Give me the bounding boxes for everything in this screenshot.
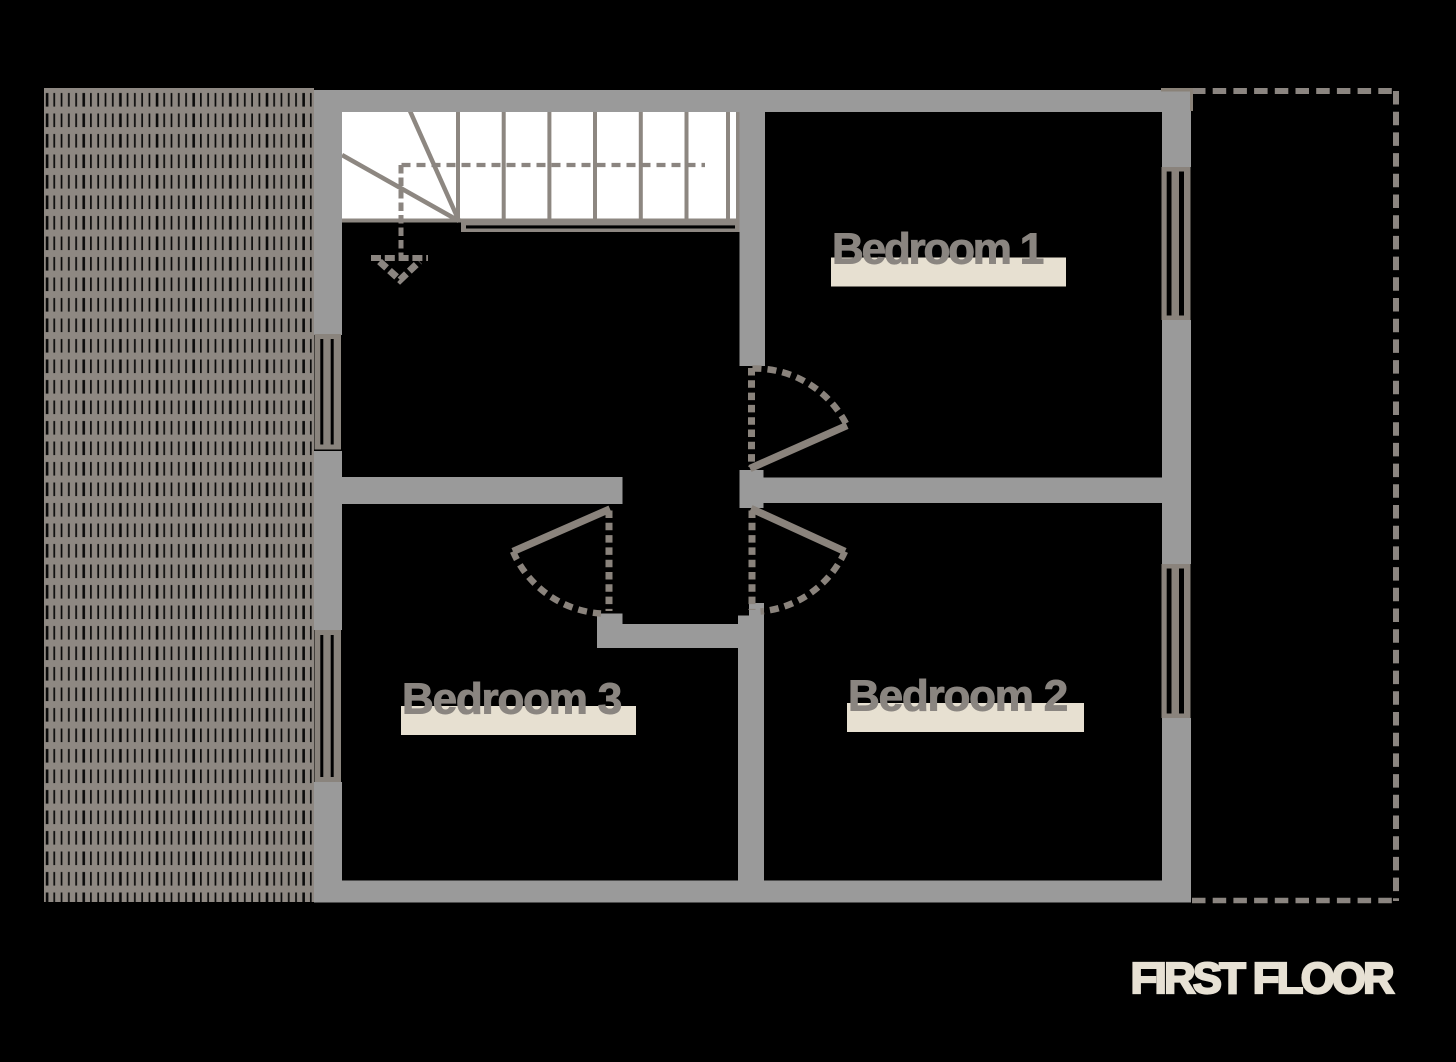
svg-text:FIRST FLOOR: FIRST FLOOR <box>1131 955 1395 1003</box>
svg-text:Bedroom 1: Bedroom 1 <box>832 225 1044 274</box>
svg-text:Bedroom 2: Bedroom 2 <box>848 672 1067 721</box>
svg-text:Bedroom 3: Bedroom 3 <box>402 675 621 724</box>
